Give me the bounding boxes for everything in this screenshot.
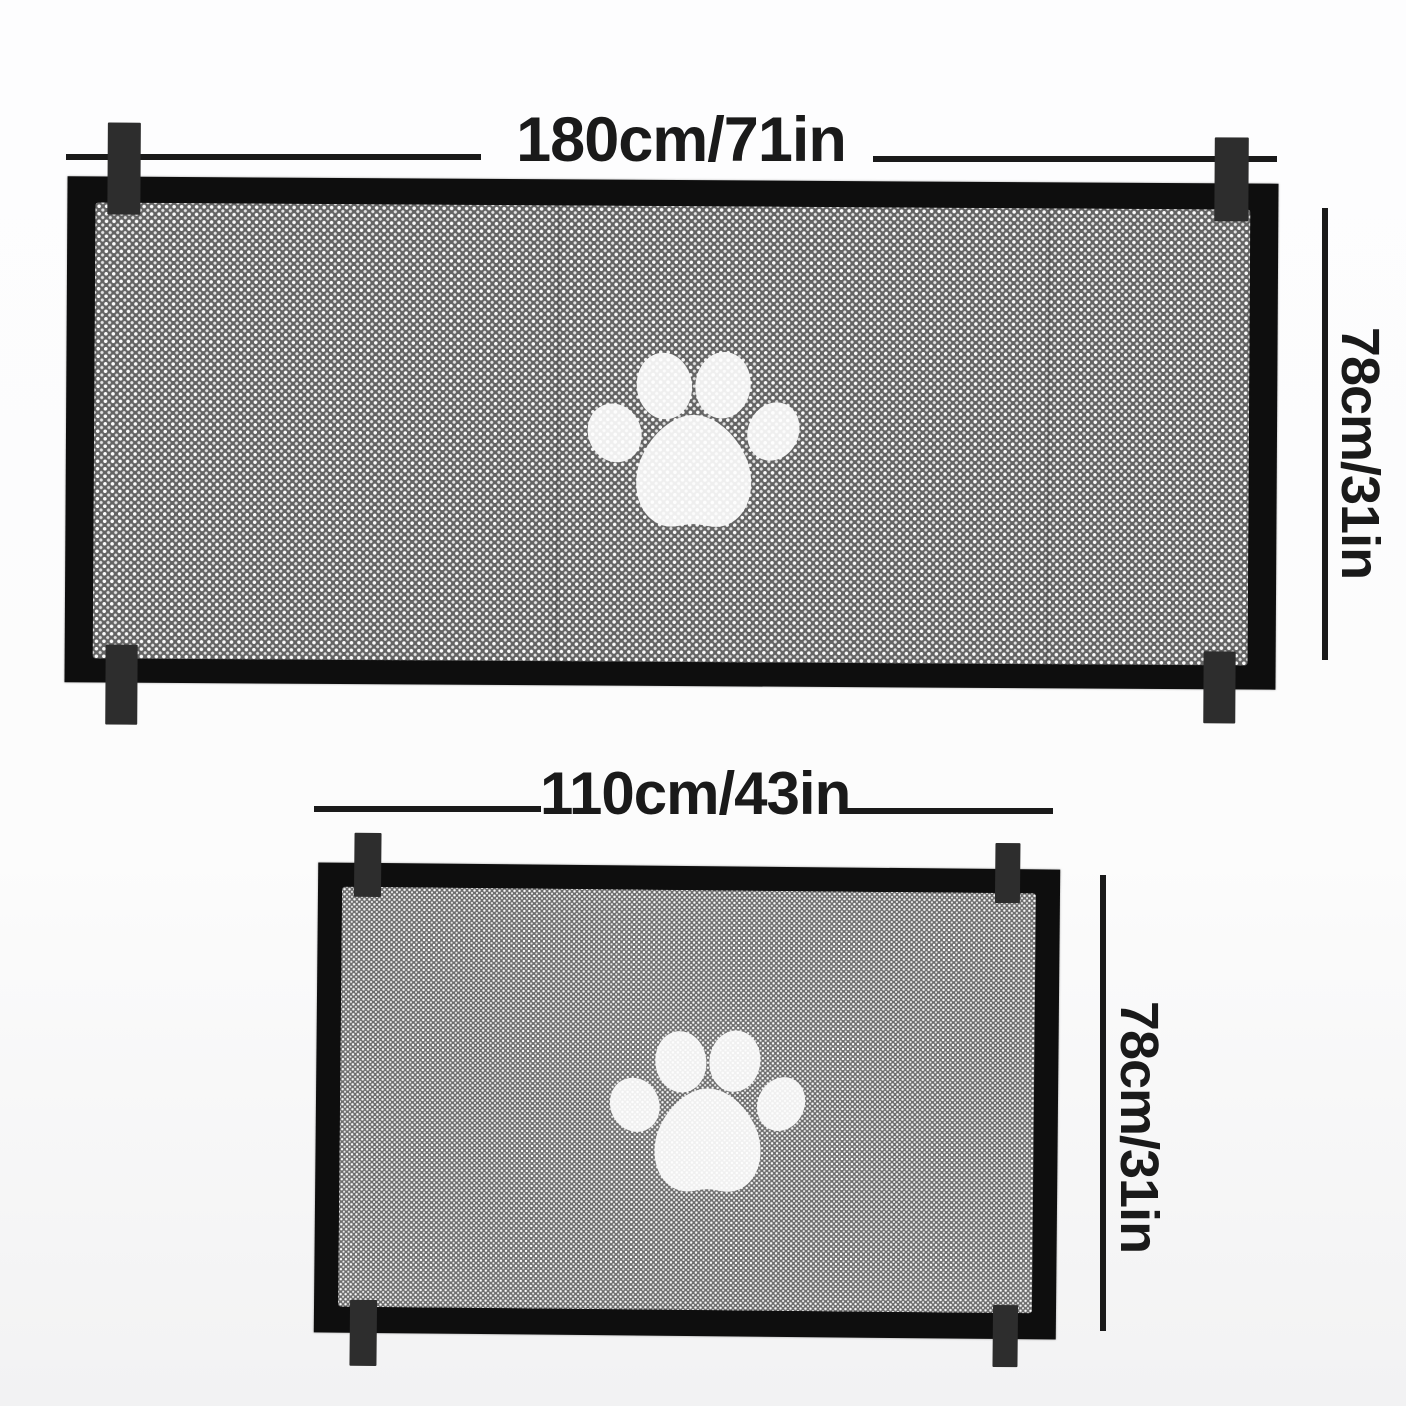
mounting-tab-top-right [1214,137,1249,221]
large-gate-height-label: 78cm/31in [1333,327,1387,579]
mesh-fold-seam [1045,208,1051,664]
large-gate [64,176,1278,689]
small-gate-width-dimension-line-right [845,808,1053,814]
mounting-tab-top-left [354,833,382,897]
small-gate-width-dimension-line-left [314,806,541,812]
paw-print-icon [601,1017,815,1219]
large-gate-width-label: 180cm/71in [481,109,881,172]
small-gate-height-label: 78cm/31in [1112,1001,1166,1253]
mounting-tab-bottom-left [349,1300,377,1366]
pet-gate-dimension-diagram: 180cm/71in 78cm/31in 110cm/43in [0,0,1406,1406]
large-gate-height-dimension-line [1322,208,1328,660]
mounting-tab-bottom-right [992,1305,1018,1367]
mounting-tab-top-right [995,843,1021,903]
mounting-tab-bottom-right [1203,651,1235,723]
small-gate-height-dimension-line [1100,875,1106,1331]
mounting-tab-top-left [107,123,141,215]
small-gate [314,862,1060,1339]
small-gate-width-label: 110cm/43in [540,764,840,824]
small-gate-mesh [338,887,1036,1314]
mounting-tab-bottom-left [105,645,137,725]
large-gate-mesh [93,202,1251,665]
paw-print-icon [578,337,809,556]
mesh-fold-seam [555,205,561,661]
